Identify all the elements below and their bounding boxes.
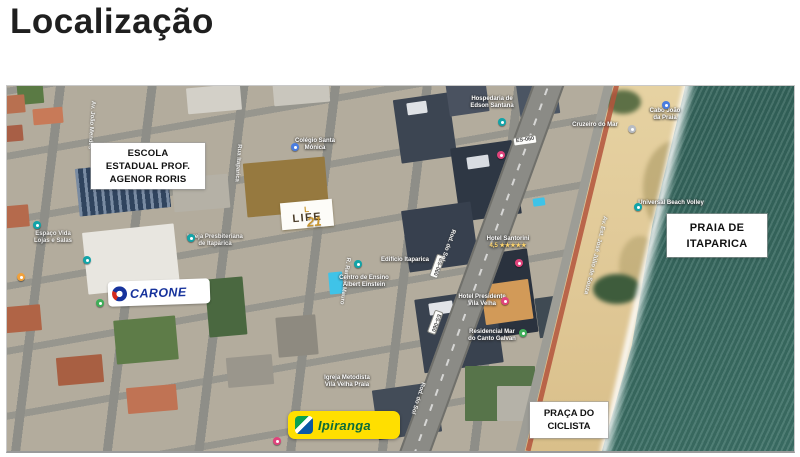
map-building — [6, 125, 24, 144]
magenta-pin-icon — [515, 259, 523, 267]
carone-icon — [112, 286, 128, 302]
teal-pin-icon — [634, 203, 642, 211]
carone-logo-text: CARONE — [130, 285, 187, 301]
magenta-pin-icon — [501, 297, 509, 305]
poi-label-centro-ensino: Centro de EnsinoAlbert Einstein — [339, 275, 389, 289]
poi-label-colegio: Colégio SantaMônica — [295, 138, 335, 152]
map-building — [186, 85, 242, 114]
ipiranga-logo: Ipiranga — [288, 411, 400, 439]
map-building — [126, 384, 178, 414]
poi-label: Cruzeiro do Mar — [572, 122, 618, 129]
teal-pin-icon — [354, 260, 362, 268]
magenta-pin-icon — [497, 151, 505, 159]
map-building — [6, 204, 30, 229]
gray-pin-icon — [628, 125, 636, 133]
map-building — [6, 304, 42, 334]
orange-pin-icon — [17, 273, 25, 281]
teal-pin-icon — [498, 118, 506, 126]
map-building — [56, 354, 104, 386]
map-building — [275, 314, 318, 357]
poi-label: Hospedaria deEdson Santana — [470, 96, 513, 110]
map-building — [226, 354, 274, 388]
green-pin-icon — [96, 299, 104, 307]
callout-praia-de-itaparica: PRAIA DE ITAPARICA — [667, 214, 767, 257]
poi-label-hotel-presidente: Hotel PresidenteVila Velha — [458, 294, 505, 308]
poi-label-edificio: Edifício Itaparica — [381, 257, 429, 264]
carone-logo: CARONE — [108, 278, 211, 307]
page-title: Localização — [10, 2, 214, 42]
map-building — [113, 315, 179, 364]
callout-praca-do-ciclista: PRAÇA DO CICLISTA — [530, 402, 608, 438]
magenta-pin-icon — [273, 437, 281, 445]
green-pin-icon — [519, 329, 527, 337]
blue-pin-icon — [662, 101, 670, 109]
location-map: ES-060 ES-060 ES-060 Av. João Mendes Rua… — [6, 85, 795, 453]
poi-label-beach-volley: Universal Beach Volley — [638, 200, 704, 207]
poi-label-igreja-metodista: Igreja MetodistaVila Velha Praia — [324, 375, 370, 389]
ipiranga-icon — [295, 416, 313, 434]
poi-label-espaco: Espaço VidaLojas e Salas — [34, 231, 72, 245]
teal-pin-icon — [83, 256, 91, 264]
life-logo-number: 21 — [306, 213, 322, 229]
callout-escola: ESCOLA ESTADUAL PROF. AGENOR RORIS — [91, 143, 205, 189]
map-building — [32, 107, 63, 126]
poi-label-igreja-presbiteriana: Igreja Presbiterianade Itaparica — [187, 234, 243, 248]
map-building — [205, 276, 248, 337]
map-building — [533, 197, 546, 207]
blue-pin-icon — [291, 143, 299, 151]
slide: { "title": "Localização", "map": { "boxe… — [0, 0, 800, 457]
poi-label-residencial: Residencial Mardo Canto Galvan — [468, 329, 516, 343]
ipiranga-logo-text: Ipiranga — [318, 418, 371, 433]
map-building — [6, 94, 26, 115]
map-building — [272, 85, 330, 106]
poi-label: Cabo Joãoda Praia — [650, 108, 681, 122]
teal-pin-icon — [33, 221, 41, 229]
poi-label-hotel-santorini: Hotel Santorini4,5 ★★★★★ — [487, 236, 530, 250]
teal-pin-icon — [187, 234, 195, 242]
